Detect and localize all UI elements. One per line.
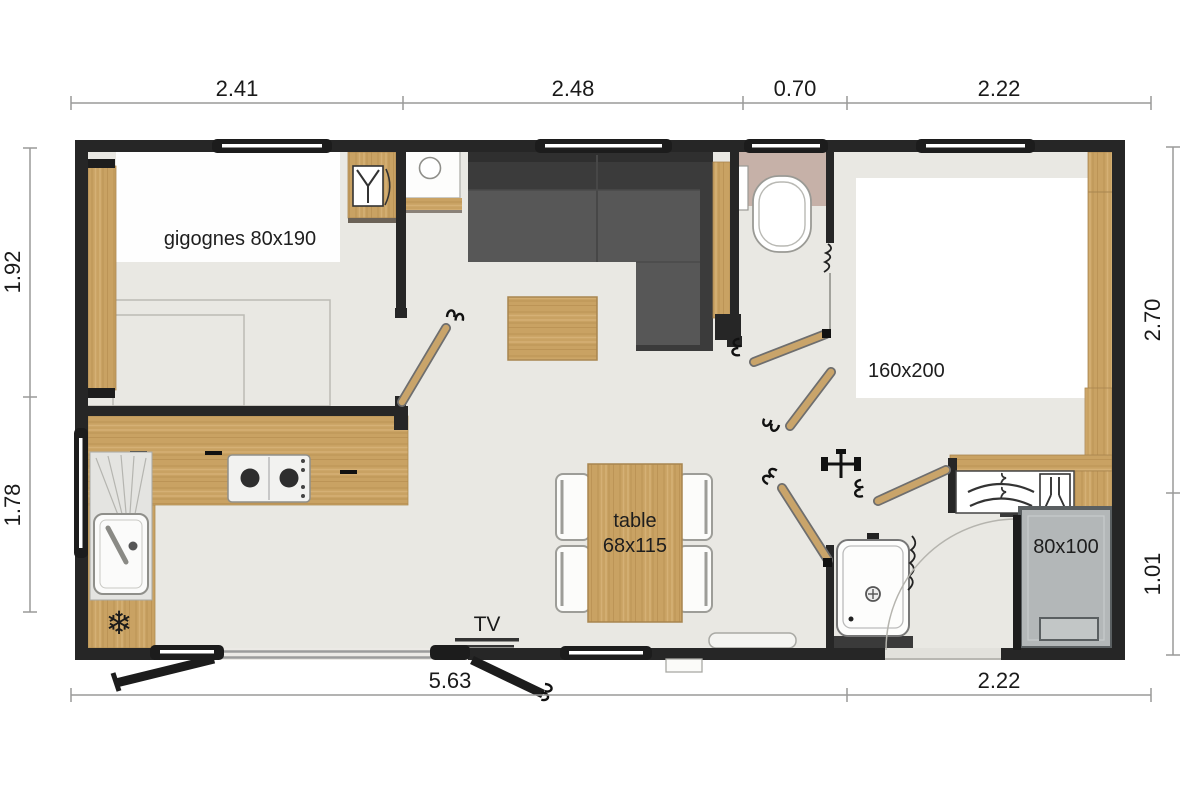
dim-top-4: 2.22 [978,76,1021,101]
toilet-icon [753,176,811,252]
chair [556,546,590,612]
wall-kitchen [87,406,408,416]
bed-headboard [1088,152,1114,408]
panel-cap [88,388,115,398]
snowflake-icon: ❄ [106,605,133,641]
window-icon [535,139,672,153]
dim-left-1: 1.92 [0,251,25,294]
window-icon [74,428,88,558]
dim-right-2: 1.01 [1140,553,1165,596]
stove-icon [228,455,310,502]
door-leaf-icon [116,659,214,683]
dim-bottom-2: 2.22 [978,668,1021,693]
wall-cap [395,308,407,318]
chair [556,474,590,540]
wall-corner-cap [394,406,408,430]
wall-left [75,140,88,660]
panel-cap [88,159,115,168]
boiler-icon [420,158,441,179]
dim-right-1: 2.70 [1140,299,1165,342]
floor-plan: ❄ [0,0,1200,800]
window-icon [916,139,1035,153]
coffee-table [508,297,597,360]
drawer-handle [205,451,222,455]
dim-top-3: 0.70 [774,76,817,101]
entry-cabinet [348,152,396,223]
chair [678,546,712,612]
shower-drain [1040,618,1098,640]
leaf-end-cap [113,673,119,691]
wall-shelf [709,633,796,648]
wall-bedroom2 [396,150,406,316]
window-icon [744,139,828,153]
window-icon [560,646,652,660]
table-label-line2: 68x115 [603,535,667,557]
floor-plan-graphics: ❄ [0,0,1200,800]
boiler-unit [402,150,462,213]
wall-wc-left [730,150,739,346]
master-bed-label: 160x200 [868,360,945,382]
kitchen-sink-icon [90,452,152,600]
water-heater-icon [1040,474,1070,511]
door-stop [849,617,854,622]
headboard-panel [88,166,116,390]
wall-right [1112,140,1125,660]
wall-wc-right [826,150,834,243]
dim-top-1: 2.41 [216,76,259,101]
dim-bottom-1: 5.63 [429,668,472,693]
shelf [402,198,462,210]
washbasin-icon [833,533,913,650]
table-label-line1: table [613,510,656,532]
dim-left-2: 1.78 [0,484,25,527]
door-leaf-icon [472,660,543,694]
dim-top-2: 2.48 [552,76,595,101]
drawer-handle [340,470,357,474]
door-leaf-icon [1013,515,1021,650]
small-bedroom-label: gigognes 80x190 [164,228,316,250]
tv-label: TV [474,613,501,636]
chair [678,474,712,540]
shower-label: 80x100 [1033,536,1099,558]
window-icon [212,139,332,153]
vent [666,659,702,672]
